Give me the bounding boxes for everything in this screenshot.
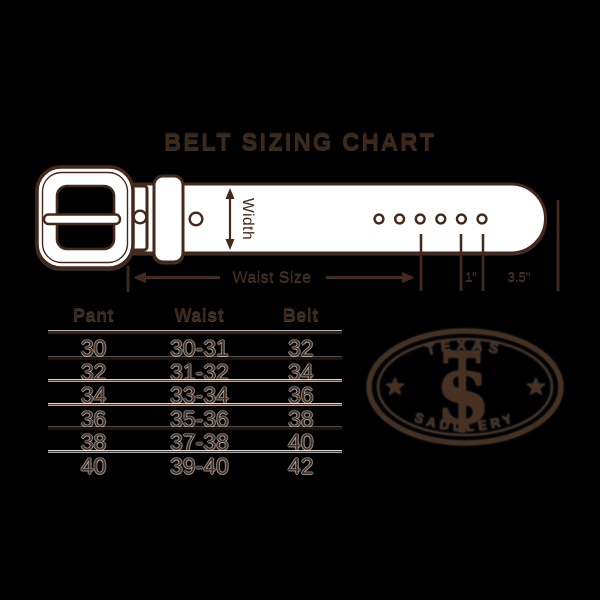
brand-logo: TEXAS SADDLERY ★ ★ S <box>362 324 568 450</box>
belt-hole <box>375 215 384 224</box>
belt-hole <box>416 215 425 224</box>
rivet-hole <box>134 211 147 224</box>
monogram-s: S <box>438 357 489 440</box>
belt-hole <box>478 215 487 224</box>
belt-hole <box>457 215 466 224</box>
table-row: 34 33-34 36 <box>48 381 342 405</box>
header-pant: Pant <box>48 305 139 326</box>
tip-length-label: 3.5" <box>508 269 531 284</box>
waist-size: 39-40 <box>139 456 260 480</box>
buckle-prong <box>44 215 120 225</box>
hole-spacing-label: 1" <box>465 269 477 284</box>
star-icon: ★ <box>384 373 406 401</box>
belt-size: 42 <box>260 456 342 480</box>
rivet-hole <box>190 213 203 226</box>
table-row: 30 30-31 32 <box>48 334 342 358</box>
table-header-row: Pant Waist Belt <box>48 302 342 329</box>
table-row: 36 35-36 38 <box>48 405 342 429</box>
table-row: 32 31-32 34 <box>48 358 342 382</box>
table-row: 40 39-40 42 <box>48 452 342 476</box>
waist-size-label: Waist Size <box>233 269 312 286</box>
size-table: Pant Waist Belt 30 30-31 32 32 31-32 34 … <box>48 302 342 475</box>
belt-keeper-loop <box>154 176 183 262</box>
belt-hole <box>436 215 445 224</box>
belt-sizing-chart-page: BELT SIZING CHART <box>0 0 600 600</box>
header-waist: Waist <box>139 305 260 326</box>
pant-size: 40 <box>48 456 139 480</box>
star-icon: ★ <box>525 373 547 401</box>
belt-hole <box>395 215 404 224</box>
table-row: 38 37-38 40 <box>48 428 342 452</box>
ts-monogram: S <box>438 351 489 440</box>
belt-diagram: Width Waist Size 1" 3.5" <box>0 160 600 300</box>
waist-size-dimension: Waist Size <box>128 266 414 291</box>
width-label: Width <box>239 198 256 240</box>
header-belt: Belt <box>260 305 342 326</box>
page-title: BELT SIZING CHART <box>0 129 600 157</box>
belt-buckle <box>37 167 133 268</box>
arrow-right-icon <box>402 272 414 282</box>
